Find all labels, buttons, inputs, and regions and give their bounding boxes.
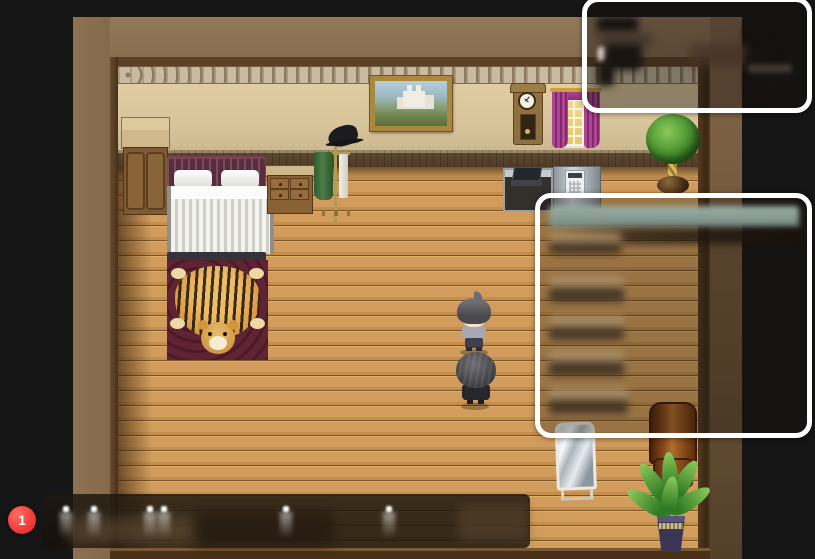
dresser-drawer	[270, 189, 289, 200]
wall-painting	[370, 76, 452, 131]
room-wall-border-left	[110, 57, 118, 559]
floor-plant	[642, 450, 698, 554]
dresser	[267, 165, 311, 212]
game-screen[interactable]: 1	[0, 0, 815, 559]
dresser-drawer	[290, 189, 309, 200]
cabinet-top	[121, 117, 170, 149]
laptop-base	[511, 180, 542, 186]
bed	[167, 156, 266, 262]
green-coat	[314, 152, 333, 200]
black-hat	[326, 123, 360, 150]
outer-floor-margin-left	[73, 17, 110, 559]
blurred-content	[744, 24, 776, 46]
blurred-text-glint	[91, 506, 97, 512]
curtain-left	[552, 90, 568, 149]
bed-duvet	[167, 186, 274, 254]
character-hair	[457, 298, 491, 324]
tiger-paw	[249, 268, 264, 279]
tiger-eye	[208, 332, 212, 336]
painting-castle	[403, 91, 425, 107]
overlay-panel-right[interactable]	[535, 193, 812, 438]
blurred-content	[746, 52, 770, 96]
tiger-head	[201, 322, 235, 354]
character-hair	[456, 352, 496, 388]
wall-cabinet	[121, 117, 168, 215]
plant-pot	[657, 176, 689, 194]
player-character	[454, 296, 494, 356]
tiger-paw	[170, 318, 185, 329]
coat-rack-legs	[322, 210, 350, 216]
blurred-content	[748, 64, 792, 73]
dialog-box[interactable]	[43, 494, 530, 548]
plant-leaves	[646, 114, 700, 164]
blurred-text-glint	[147, 506, 153, 512]
blurred-text-glint	[63, 506, 69, 512]
dresser-drawer	[290, 178, 309, 189]
tiger-rug	[167, 260, 268, 360]
character-shadow	[461, 403, 489, 410]
blurred-text-glint	[386, 506, 392, 512]
grandfather-clock	[510, 83, 544, 143]
blurred-content	[458, 504, 528, 542]
npc-character	[455, 350, 495, 410]
coat-rack	[312, 126, 358, 216]
blurred-row	[549, 316, 624, 340]
blurred-content	[690, 44, 748, 66]
blurred-content	[597, 62, 614, 86]
laptop	[511, 167, 543, 189]
potted-plant	[644, 114, 702, 194]
tiger-paw	[171, 268, 186, 279]
blurred-row	[549, 388, 628, 414]
white-towel	[339, 154, 348, 198]
room-wall-border-bottom	[110, 548, 710, 559]
panel-header-blur	[549, 206, 799, 228]
tiger-paw	[250, 318, 265, 329]
blurred-text-glint	[283, 506, 289, 512]
dresser-drawer	[270, 178, 289, 189]
blurred-row	[549, 233, 621, 254]
blurred-content	[597, 17, 638, 32]
clock-face	[518, 92, 536, 110]
overlay-panel-top-right[interactable]	[582, 0, 812, 113]
cabinet-doors	[123, 147, 168, 215]
blurred-row	[549, 276, 624, 302]
tiger-eye	[223, 332, 227, 336]
tiger-muzzle	[209, 336, 227, 350]
floor-plant-pot	[655, 516, 687, 552]
mirror-stand	[561, 489, 593, 500]
character-feet	[467, 400, 473, 404]
clock-pendulum	[520, 114, 536, 140]
blurred-row	[549, 350, 624, 376]
blurred-content	[193, 512, 333, 546]
notification-badge[interactable]: 1	[8, 506, 36, 534]
blurred-text-glint	[161, 506, 167, 512]
